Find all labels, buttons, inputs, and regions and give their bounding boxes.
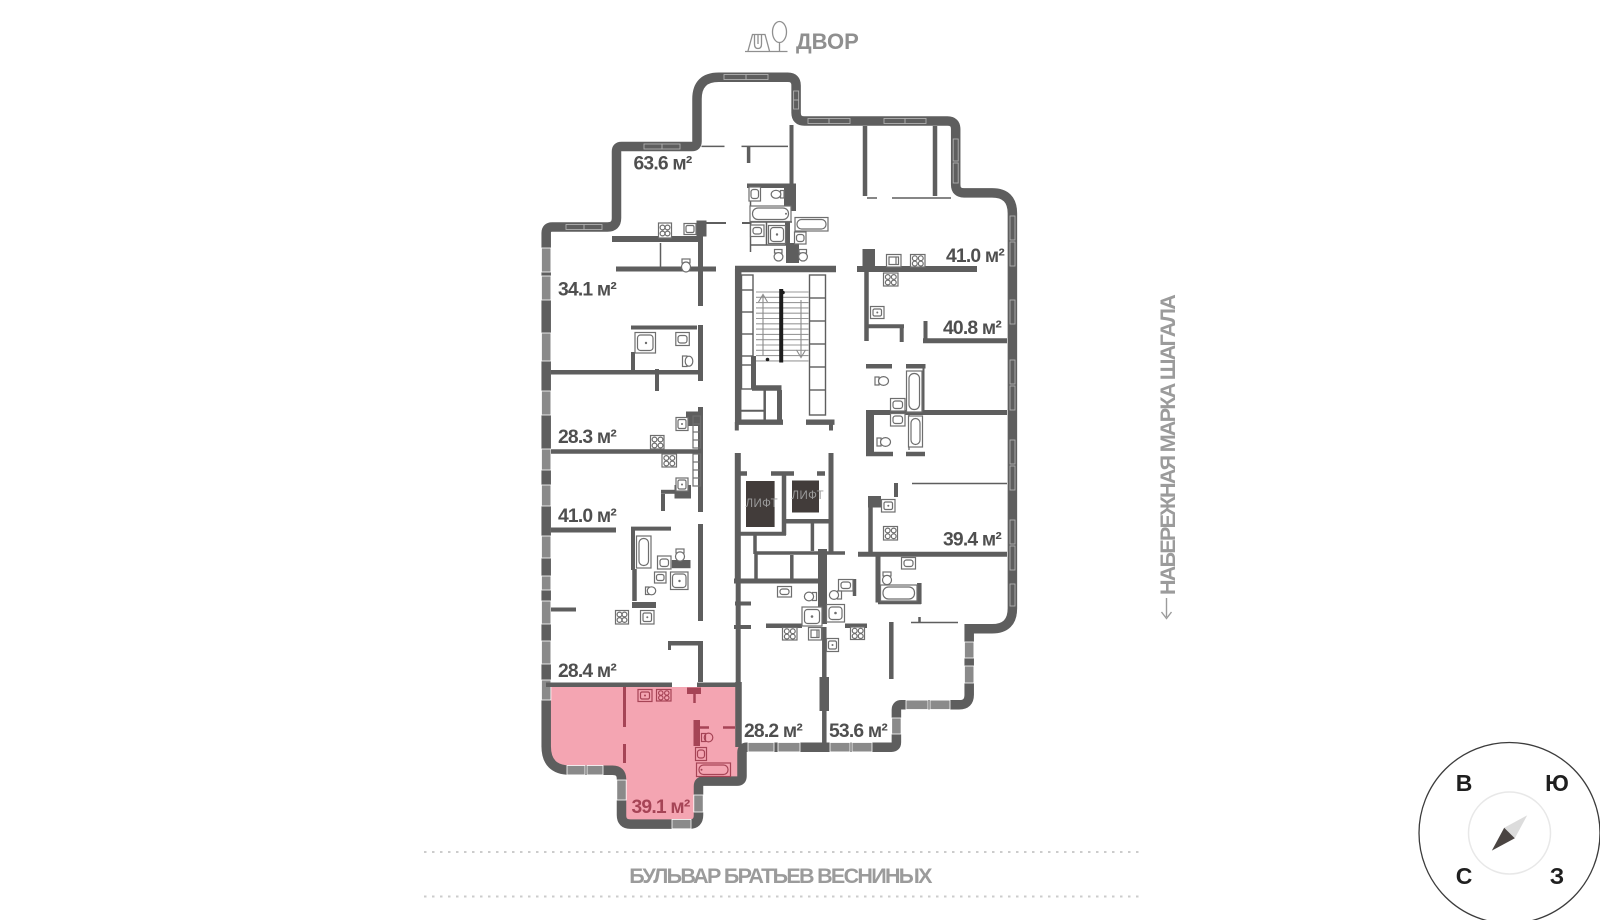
svg-text:ЛИФТ: ЛИФТ bbox=[746, 498, 779, 510]
svg-text:БУЛЬВАР БРАТЬЕВ ВЕСНИНЫХ: БУЛЬВАР БРАТЬЕВ ВЕСНИНЫХ bbox=[629, 864, 933, 888]
svg-text:В: В bbox=[1456, 770, 1473, 796]
svg-text:28.3 м²: 28.3 м² bbox=[558, 427, 617, 448]
svg-text:39.1 м²: 39.1 м² bbox=[632, 797, 691, 818]
svg-text:41.0 м²: 41.0 м² bbox=[558, 506, 617, 527]
svg-text:НАБЕРЕЖНАЯ МАРКА ШАГАЛА: НАБЕРЕЖНАЯ МАРКА ШАГАЛА bbox=[1156, 295, 1180, 595]
svg-text:28.2 м²: 28.2 м² bbox=[744, 721, 803, 742]
svg-text:З: З bbox=[1550, 863, 1564, 889]
svg-text:ДВОР: ДВОР bbox=[796, 29, 859, 54]
svg-text:40.8 м²: 40.8 м² bbox=[943, 318, 1002, 339]
svg-text:53.6 м²: 53.6 м² bbox=[829, 721, 888, 742]
svg-text:63.6 м²: 63.6 м² bbox=[634, 154, 693, 175]
svg-text:28.4 м²: 28.4 м² bbox=[558, 661, 617, 682]
svg-text:39.4 м²: 39.4 м² bbox=[943, 530, 1002, 551]
svg-text:С: С bbox=[1456, 863, 1473, 889]
svg-text:34.1 м²: 34.1 м² bbox=[558, 280, 617, 301]
svg-text:Ю: Ю bbox=[1545, 770, 1569, 796]
svg-text:41.0 м²: 41.0 м² bbox=[946, 246, 1005, 267]
svg-text:ЛИФТ: ЛИФТ bbox=[792, 490, 825, 502]
